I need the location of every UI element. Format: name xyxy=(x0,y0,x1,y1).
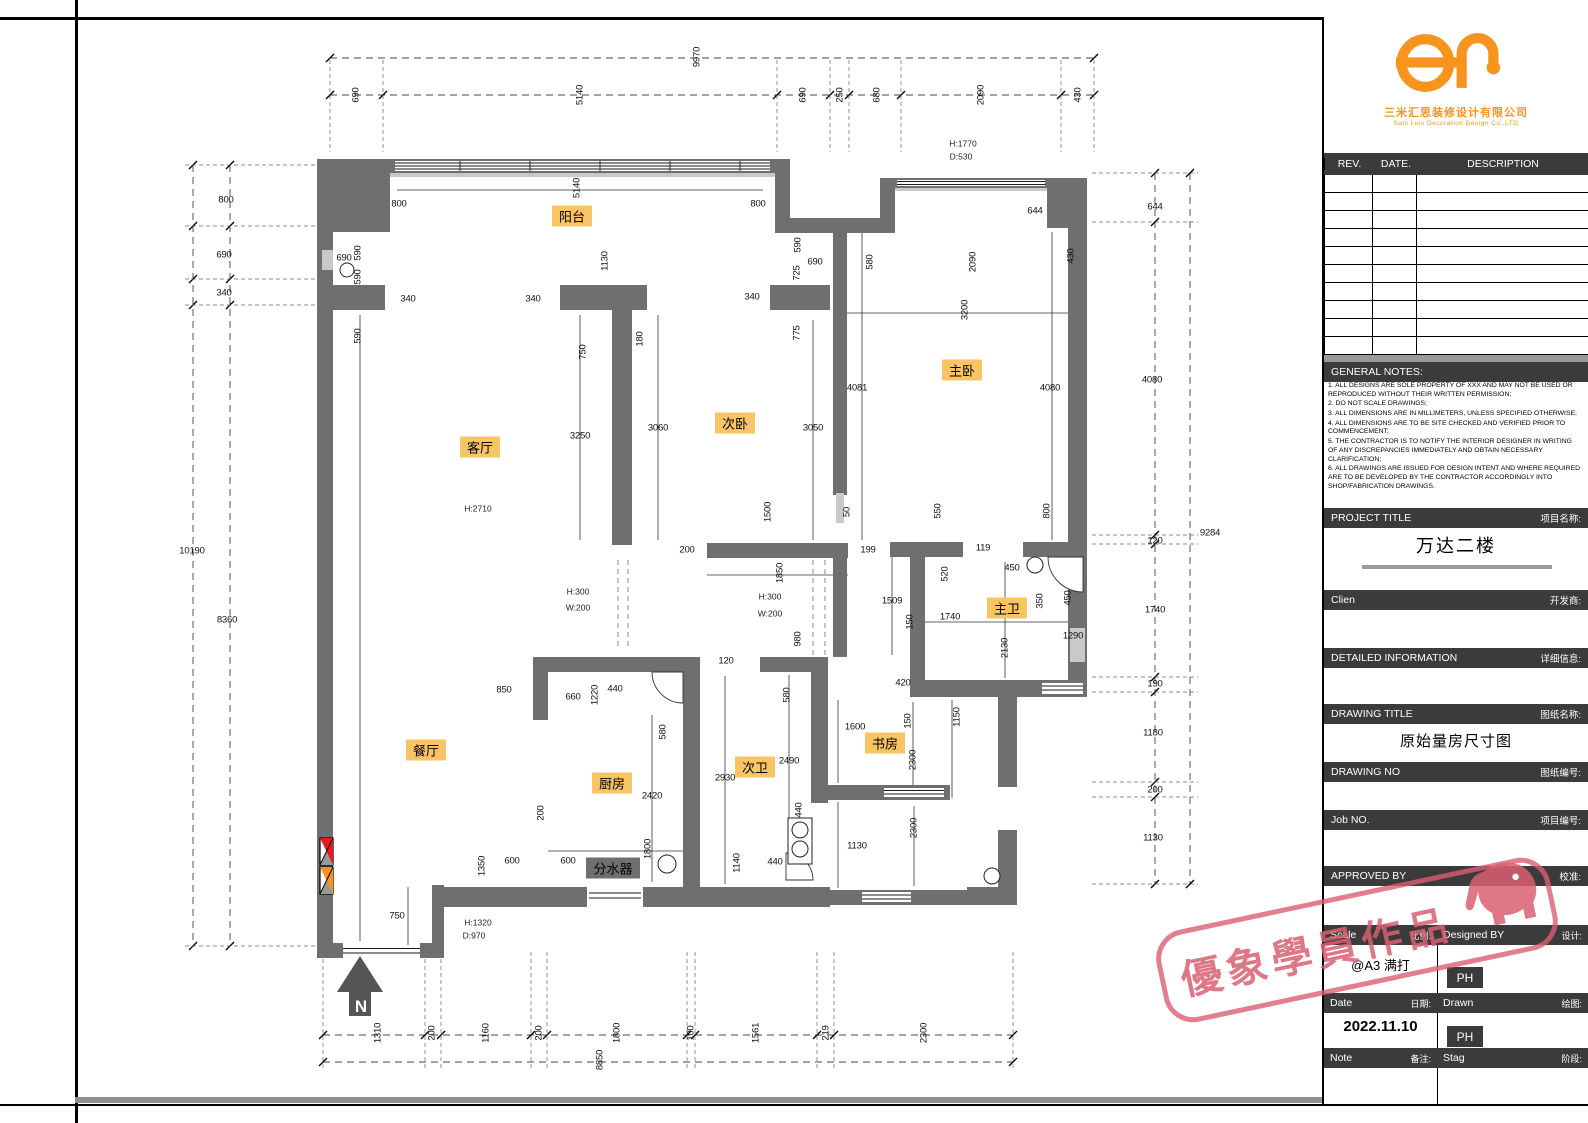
dim-label: 5140 xyxy=(572,178,583,198)
dim-label: 2090 xyxy=(968,252,979,272)
plan-note: H:300 xyxy=(759,591,782,601)
dim-label: 9970 xyxy=(692,47,703,67)
dim-label: 850 xyxy=(496,685,511,696)
dim-label: 644 xyxy=(1147,202,1162,213)
dim-label: 725 xyxy=(792,265,803,280)
dim-label: 1220 xyxy=(590,685,601,705)
date-header: Date 日期: xyxy=(1324,993,1437,1013)
dim-label: 430 xyxy=(1073,87,1084,102)
general-note-item: 4. ALL DIMENSIONS ARE TO BE SITE CHECKED… xyxy=(1328,420,1582,437)
dim-label: 590 xyxy=(353,328,364,343)
project-title-value: 万达二楼 xyxy=(1324,532,1588,558)
wall-bath2-right xyxy=(811,657,828,803)
dim-label: 2300 xyxy=(919,1023,930,1043)
wall-topleft-block xyxy=(317,159,390,232)
dim-label: 3060 xyxy=(648,423,668,434)
room-label: 书房 xyxy=(872,737,898,752)
dim-label: 450 xyxy=(1063,590,1074,605)
dim-label: 200 xyxy=(1147,785,1162,796)
plan-note: D:530 xyxy=(950,151,973,161)
dim-label: 150 xyxy=(905,614,916,629)
dim-label: 660 xyxy=(565,692,580,703)
wall-balcony-chunk-center xyxy=(560,285,647,310)
room-label: 主卫 xyxy=(994,602,1020,617)
dim-label: 800 xyxy=(750,199,765,210)
revision-row xyxy=(1324,229,1588,247)
room-label: 厨房 xyxy=(599,777,625,792)
dim-label: 590 xyxy=(353,269,364,284)
plan-note: H:1320 xyxy=(464,917,492,927)
dim-label: 1150 xyxy=(952,707,963,727)
dim-label: 580 xyxy=(658,724,669,739)
dim-label: 340 xyxy=(525,294,540,305)
dim-label: 520 xyxy=(940,566,951,581)
revision-row xyxy=(1324,193,1588,211)
revision-row xyxy=(1324,175,1588,193)
wall-left-outer xyxy=(317,159,333,943)
dim-label: 1740 xyxy=(940,612,960,623)
bottomroom-circle xyxy=(984,868,1000,884)
dim-label: 580 xyxy=(865,254,876,269)
dim-label: 690 xyxy=(351,87,362,102)
plan-note: W:200 xyxy=(566,602,591,612)
room-label: 阳台 xyxy=(559,210,585,225)
revision-header: REV. DATE. DESCRIPTION xyxy=(1324,153,1588,175)
dim-label: 1160 xyxy=(481,1023,492,1043)
dim-label: 4081 xyxy=(847,383,867,394)
dim-label: 3250 xyxy=(570,431,590,442)
wall-living-bed2-divider xyxy=(612,310,632,545)
room-label: 餐厅 xyxy=(413,744,439,759)
dim-label: 4080 xyxy=(1142,375,1162,386)
dim-label: 120 xyxy=(1147,536,1162,547)
dim-label: 340 xyxy=(744,292,759,303)
detailed-info-header: DETAILED INFORMATION 详细信息: xyxy=(1324,648,1588,668)
dim-label: 200 xyxy=(536,805,547,820)
dim-label: 9284 xyxy=(1200,528,1220,539)
dim-label: 750 xyxy=(389,911,404,922)
dim-label: 200 xyxy=(427,1025,438,1040)
walls xyxy=(317,159,1087,958)
room-label: 主卧 xyxy=(949,364,975,379)
general-note-item: 1. ALL DESIGNS ARE SOLE PROPERTY OF XXX … xyxy=(1328,382,1582,399)
general-note-item: 6. ALL DRAWINGS ARE ISSUED FOR DESIGN IN… xyxy=(1328,465,1582,491)
dim-label: 119 xyxy=(976,543,991,554)
dim-label: 1140 xyxy=(732,853,743,873)
revision-row xyxy=(1324,247,1588,265)
dim-label: 1290 xyxy=(1063,631,1083,642)
dim-label: 980 xyxy=(793,631,804,646)
dim-label: 120 xyxy=(718,656,733,667)
general-notes-header: GENERAL NOTES: xyxy=(1324,362,1588,382)
revision-row xyxy=(1324,283,1588,301)
room-label: 客厅 xyxy=(467,441,493,456)
dim-label: 2090 xyxy=(976,85,987,105)
wall-kitchen-right xyxy=(683,672,700,887)
revision-row xyxy=(1324,301,1588,319)
dim-label: 190 xyxy=(1147,679,1162,690)
drawn-header: Drawn 绘图: xyxy=(1437,993,1588,1013)
dim-label: 1130 xyxy=(1143,833,1163,844)
stage-header: Stag 阶段: xyxy=(1437,1048,1588,1068)
dim-label: 440 xyxy=(794,802,805,817)
dim-label: 690 xyxy=(807,257,822,268)
dim-label: 4080 xyxy=(1040,383,1060,394)
dim-label: 3200 xyxy=(960,300,971,320)
dim-label: 10190 xyxy=(179,546,204,557)
north-label: N xyxy=(355,997,367,1016)
general-note-item: 3. ALL DIMENSIONS ARE IN MILLIMETERS, UN… xyxy=(1328,410,1582,419)
wall-kitchen-top xyxy=(533,657,700,672)
wall-bottom-b xyxy=(643,887,830,907)
wall-bed2-bottom xyxy=(707,543,848,558)
dim-label: 340 xyxy=(216,288,231,299)
plan-note: H:300 xyxy=(567,586,590,596)
dim-label: 50 xyxy=(842,507,853,517)
wall-master-pier-right xyxy=(1047,178,1068,228)
date-value: 2022.11.10 xyxy=(1324,1018,1437,1035)
dim-label: 1130 xyxy=(847,841,867,852)
dim-label: 1600 xyxy=(845,722,865,733)
room-label: 分水器 xyxy=(593,862,632,877)
dim-label: 100 xyxy=(686,1025,697,1040)
designed-by-value: PH xyxy=(1447,967,1483,988)
dim-label: 1350 xyxy=(477,856,488,876)
dim-label: 550 xyxy=(933,503,944,518)
openings xyxy=(322,161,1085,956)
general-note-item: 2. DO NOT SCALE DRAWINGS; xyxy=(1328,400,1582,409)
dim-label: 775 xyxy=(792,325,803,340)
dim-label: 2930 xyxy=(715,773,735,784)
drawing-title-header: DRAWING TITLE 图纸名称: xyxy=(1324,704,1588,724)
dim-label: 590 xyxy=(353,245,364,260)
dim-label: 2130 xyxy=(1000,638,1011,658)
wall-bottom-a xyxy=(443,887,587,907)
dim-label: 1800 xyxy=(643,839,654,859)
dim-label: 1561 xyxy=(751,1023,762,1043)
plan-note: D:970 xyxy=(463,930,486,940)
wall-master-pier-left xyxy=(880,178,895,223)
dim-label: 8360 xyxy=(217,615,237,626)
company-name-cn: 三米汇思装修设计有限公司 xyxy=(1324,104,1588,120)
client-header: Clien 开发商: xyxy=(1324,590,1588,610)
dim-label: 800 xyxy=(218,195,233,206)
company-logo-icon xyxy=(1392,29,1520,97)
dim-label: 1850 xyxy=(775,563,786,583)
drawing-no-header: DRAWING NO 图纸编号: xyxy=(1324,762,1588,782)
masterbath-door-leaf xyxy=(1048,557,1083,592)
dim-label: 440 xyxy=(767,857,782,868)
revision-table xyxy=(1324,175,1588,355)
wall-balcony-chunk-left xyxy=(317,285,385,310)
drawing-sheet: N 99706905140690250680209043010190800690… xyxy=(0,0,1588,1123)
dim-label: 2300 xyxy=(909,818,920,838)
wall-master-bottom-right xyxy=(1023,542,1068,557)
dim-label: 1500 xyxy=(763,502,774,522)
dim-label: 1180 xyxy=(1143,728,1163,739)
wall-balcony-chunk-right xyxy=(770,285,830,310)
dim-label: 340 xyxy=(400,294,415,305)
dim-label: 219 xyxy=(821,1025,832,1040)
dim-label: 644 xyxy=(1027,206,1042,217)
dim-label: 250 xyxy=(835,87,846,102)
north-arrow: N xyxy=(337,956,383,1016)
dim-label: 680 xyxy=(872,87,883,102)
dim-label: 600 xyxy=(560,856,575,867)
wall-master-bottom-left xyxy=(890,542,963,557)
project-title-header: PROJECT TITLE 项目名称: xyxy=(1324,508,1588,528)
toilet-circle xyxy=(1027,557,1043,573)
plan-note: W:200 xyxy=(758,608,783,618)
general-note-item: 5. THE CONTRACTOR IS TO NOTIFY THE INTER… xyxy=(1328,438,1582,464)
description-col-header: DESCRIPTION xyxy=(1418,158,1588,170)
dim-label: 440 xyxy=(607,684,622,695)
company-name-en: Sam Luis Decoration Design Co.,LTD xyxy=(1324,120,1588,127)
dim-label: 430 xyxy=(1066,248,1077,263)
dim-label: 690 xyxy=(798,87,809,102)
dim-label: 180 xyxy=(635,331,646,346)
drawing-title-value: 原始量房尺寸图 xyxy=(1324,730,1588,751)
dim-label: 590 xyxy=(793,237,804,252)
job-no-header: Job NO. 项目编号: xyxy=(1324,810,1588,830)
dim-label: 150 xyxy=(903,713,914,728)
rev-col-header: REV. xyxy=(1324,158,1374,170)
room-label: 次卧 xyxy=(722,417,748,432)
revision-row xyxy=(1324,265,1588,283)
dim-label: 8850 xyxy=(595,1050,606,1070)
general-notes-list: 1. ALL DESIGNS ARE SOLE PROPERTY OF XXX … xyxy=(1328,382,1582,492)
dim-label: 200 xyxy=(534,1025,545,1040)
revision-row xyxy=(1324,211,1588,229)
wall-master-left-upper xyxy=(833,218,847,495)
wall-entry-bottom-left xyxy=(317,943,343,958)
dim-label: 2420 xyxy=(642,791,662,802)
dim-label: 2300 xyxy=(908,750,919,770)
date-col-header: DATE. xyxy=(1374,158,1418,170)
dim-label: 690 xyxy=(336,253,351,264)
plan-note: H:2710 xyxy=(464,503,492,513)
room-label: 次卫 xyxy=(742,761,768,776)
dim-label: 1310 xyxy=(373,1023,384,1043)
dim-label: 420 xyxy=(895,678,910,689)
dim-label: 1509 xyxy=(882,596,902,607)
wall-bottom-step xyxy=(967,887,1017,905)
wall-corridor-east xyxy=(833,543,847,657)
drawn-value: PH xyxy=(1447,1026,1483,1047)
wall-kitchen-left xyxy=(533,657,548,720)
kitchen-meter-circle xyxy=(658,855,676,873)
dim-label: 199 xyxy=(860,545,875,556)
dim-label: 800 xyxy=(391,199,406,210)
kitchen-door-leaf xyxy=(652,672,683,703)
dim-label: 1800 xyxy=(612,1023,623,1043)
dim-label: 5140 xyxy=(575,85,586,105)
dim-label: 750 xyxy=(578,344,589,359)
revision-row xyxy=(1324,337,1588,355)
company-logo-area: 三米汇思装修设计有限公司 Sam Luis Decoration Design … xyxy=(1324,17,1588,153)
plan-note: H:1770 xyxy=(949,138,977,148)
dim-label: 1740 xyxy=(1145,605,1165,616)
dim-label: 600 xyxy=(504,856,519,867)
dim-label: 800 xyxy=(1042,503,1053,518)
wall-entry-bottom-right xyxy=(420,943,444,958)
dim-label: 3050 xyxy=(803,423,823,434)
dim-label: 1130 xyxy=(600,251,611,271)
dim-label: 200 xyxy=(679,545,694,556)
dim-label: 2490 xyxy=(779,756,799,767)
dim-label: 450 xyxy=(1004,563,1019,574)
note-header: Note 备注: xyxy=(1324,1048,1437,1068)
dim-label: 690 xyxy=(216,250,231,261)
revision-row xyxy=(1324,319,1588,337)
dim-label: 580 xyxy=(782,687,793,702)
dim-label: 350 xyxy=(1035,593,1046,608)
